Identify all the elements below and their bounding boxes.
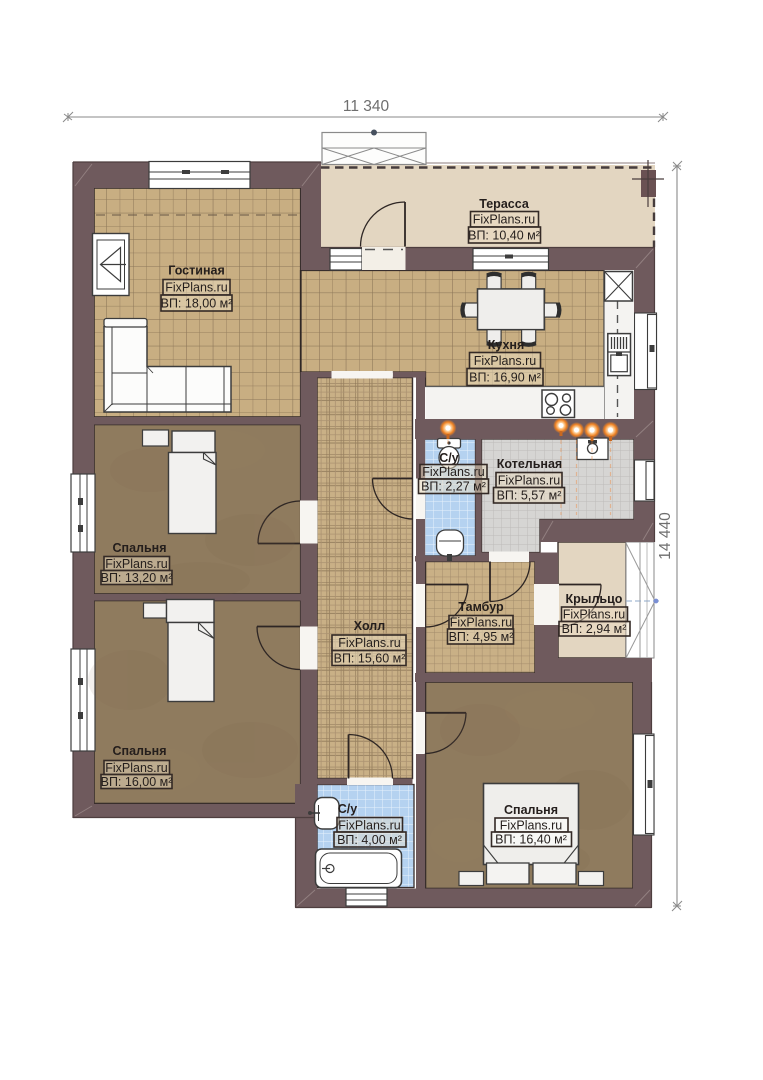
- svg-text:ВП: 2,27 м²: ВП: 2,27 м²: [421, 480, 486, 494]
- svg-text:FixPlans.ru: FixPlans.ru: [500, 819, 563, 833]
- svg-text:FixPlans.ru: FixPlans.ru: [498, 474, 561, 488]
- svg-text:Котельная: Котельная: [497, 457, 562, 471]
- svg-text:Спальня: Спальня: [504, 803, 558, 817]
- svg-text:FixPlans.ru: FixPlans.ru: [563, 608, 626, 622]
- svg-text:FixPlans.ru: FixPlans.ru: [105, 761, 168, 775]
- svg-text:ВП: 4,00 м²: ВП: 4,00 м²: [337, 833, 402, 847]
- svg-text:Тамбур: Тамбур: [458, 600, 504, 614]
- svg-text:14 440: 14 440: [657, 512, 674, 560]
- svg-text:ВП: 18,00 м²: ВП: 18,00 м²: [161, 297, 233, 311]
- svg-text:Гостиная: Гостиная: [168, 264, 225, 278]
- svg-text:FixPlans.ru: FixPlans.ru: [338, 636, 401, 650]
- svg-text:ВП: 4,95 м²: ВП: 4,95 м²: [449, 630, 514, 644]
- svg-text:FixPlans.ru: FixPlans.ru: [105, 557, 168, 571]
- svg-text:С/у: С/у: [439, 451, 459, 465]
- svg-text:FixPlans.ru: FixPlans.ru: [474, 354, 537, 368]
- svg-text:FixPlans.ru: FixPlans.ru: [473, 213, 536, 227]
- svg-text:Крыльцо: Крыльцо: [566, 592, 623, 606]
- svg-text:11 340: 11 340: [343, 98, 390, 115]
- svg-text:С/у: С/у: [338, 802, 358, 816]
- svg-text:Холл: Холл: [354, 619, 385, 633]
- svg-text:Спальня: Спальня: [113, 744, 167, 758]
- svg-text:ВП: 13,20 м²: ВП: 13,20 м²: [101, 571, 173, 585]
- svg-text:FixPlans.ru: FixPlans.ru: [450, 616, 513, 630]
- svg-text:FixPlans.ru: FixPlans.ru: [338, 819, 401, 833]
- svg-text:ВП: 10,40 м²: ВП: 10,40 м²: [468, 229, 540, 243]
- svg-text:FixPlans.ru: FixPlans.ru: [422, 465, 485, 479]
- svg-text:ВП: 2,94 м²: ВП: 2,94 м²: [562, 622, 627, 636]
- svg-text:Спальня: Спальня: [113, 541, 167, 555]
- svg-text:FixPlans.ru: FixPlans.ru: [165, 281, 228, 295]
- svg-text:ВП: 16,90 м²: ВП: 16,90 м²: [469, 371, 541, 385]
- svg-text:ВП: 5,57 м²: ВП: 5,57 м²: [497, 489, 562, 503]
- svg-text:ВП: 16,00 м²: ВП: 16,00 м²: [101, 775, 173, 789]
- svg-text:Кухня: Кухня: [488, 338, 525, 352]
- svg-text:ВП: 15,60 м²: ВП: 15,60 м²: [334, 652, 406, 666]
- svg-text:ВП: 16,40 м²: ВП: 16,40 м²: [495, 833, 567, 847]
- svg-text:Терасса: Терасса: [479, 197, 530, 211]
